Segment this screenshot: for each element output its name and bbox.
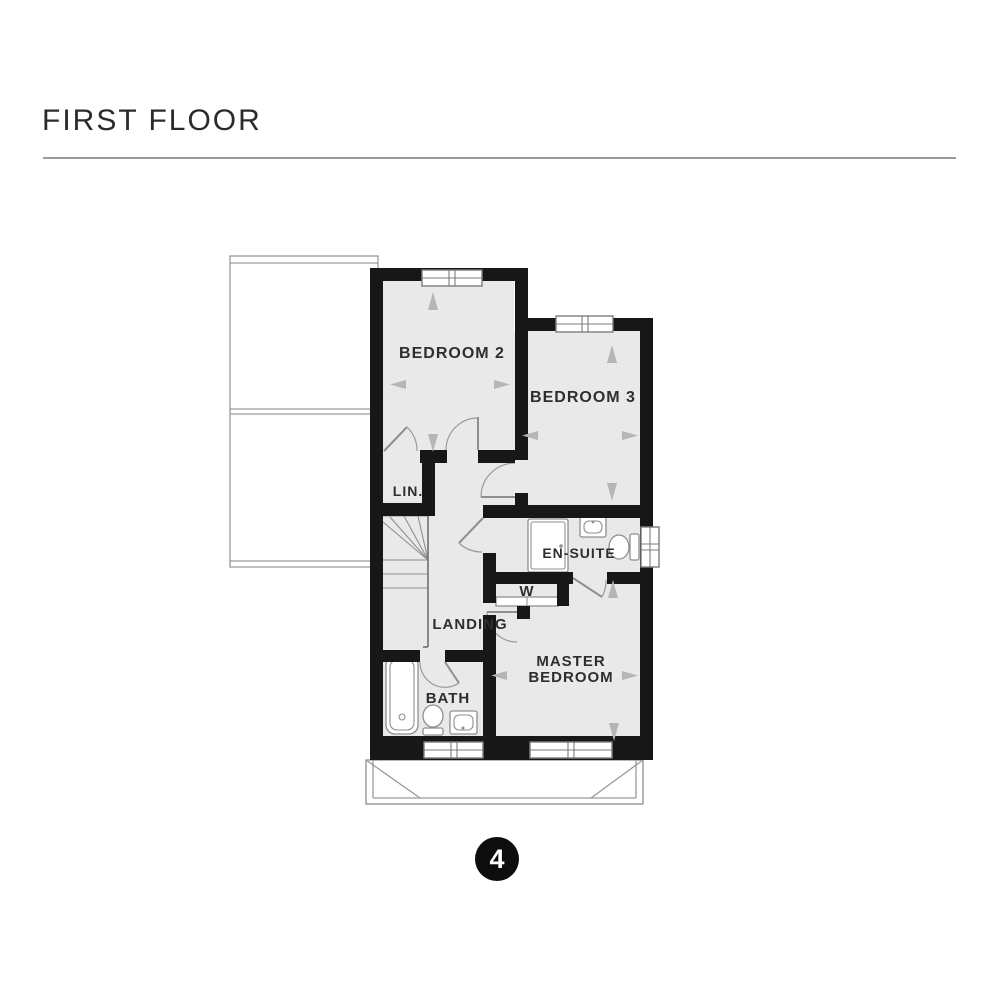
window-bath — [424, 742, 483, 758]
canopy-outline — [366, 760, 643, 804]
room-label-bath: BATH — [426, 690, 471, 707]
ensuite-sink-icon — [580, 517, 606, 537]
window-bedroom2 — [422, 270, 482, 286]
floorplan: BEDROOM 2 BEDROOM 3 LIN. EN-SUITE W LAND… — [215, 245, 675, 820]
room-label-ensuite: EN-SUITE — [542, 545, 615, 561]
bath-toilet-icon — [423, 705, 443, 735]
room-label-master-line2: BEDROOM — [528, 669, 613, 686]
neighbor-unit-outline — [230, 256, 378, 567]
room-label-wardrobe: W — [519, 583, 534, 600]
room-label-bedroom2: BEDROOM 2 — [399, 345, 505, 362]
room-label-linen: LIN. — [393, 483, 423, 499]
bathtub-icon — [386, 656, 418, 734]
plot-number-badge: 4 — [475, 837, 519, 881]
header-rule — [43, 157, 956, 159]
room-label-master-line1: MASTER — [536, 653, 605, 670]
room-label-landing: LANDING — [432, 616, 507, 633]
window-ensuite — [641, 527, 659, 567]
bath-sink-icon — [450, 711, 477, 734]
window-bedroom3 — [556, 316, 613, 332]
page-title: FIRST FLOOR — [42, 104, 262, 138]
window-master — [530, 742, 612, 758]
plot-number: 4 — [489, 844, 504, 875]
room-label-bedroom3: BEDROOM 3 — [530, 389, 636, 406]
